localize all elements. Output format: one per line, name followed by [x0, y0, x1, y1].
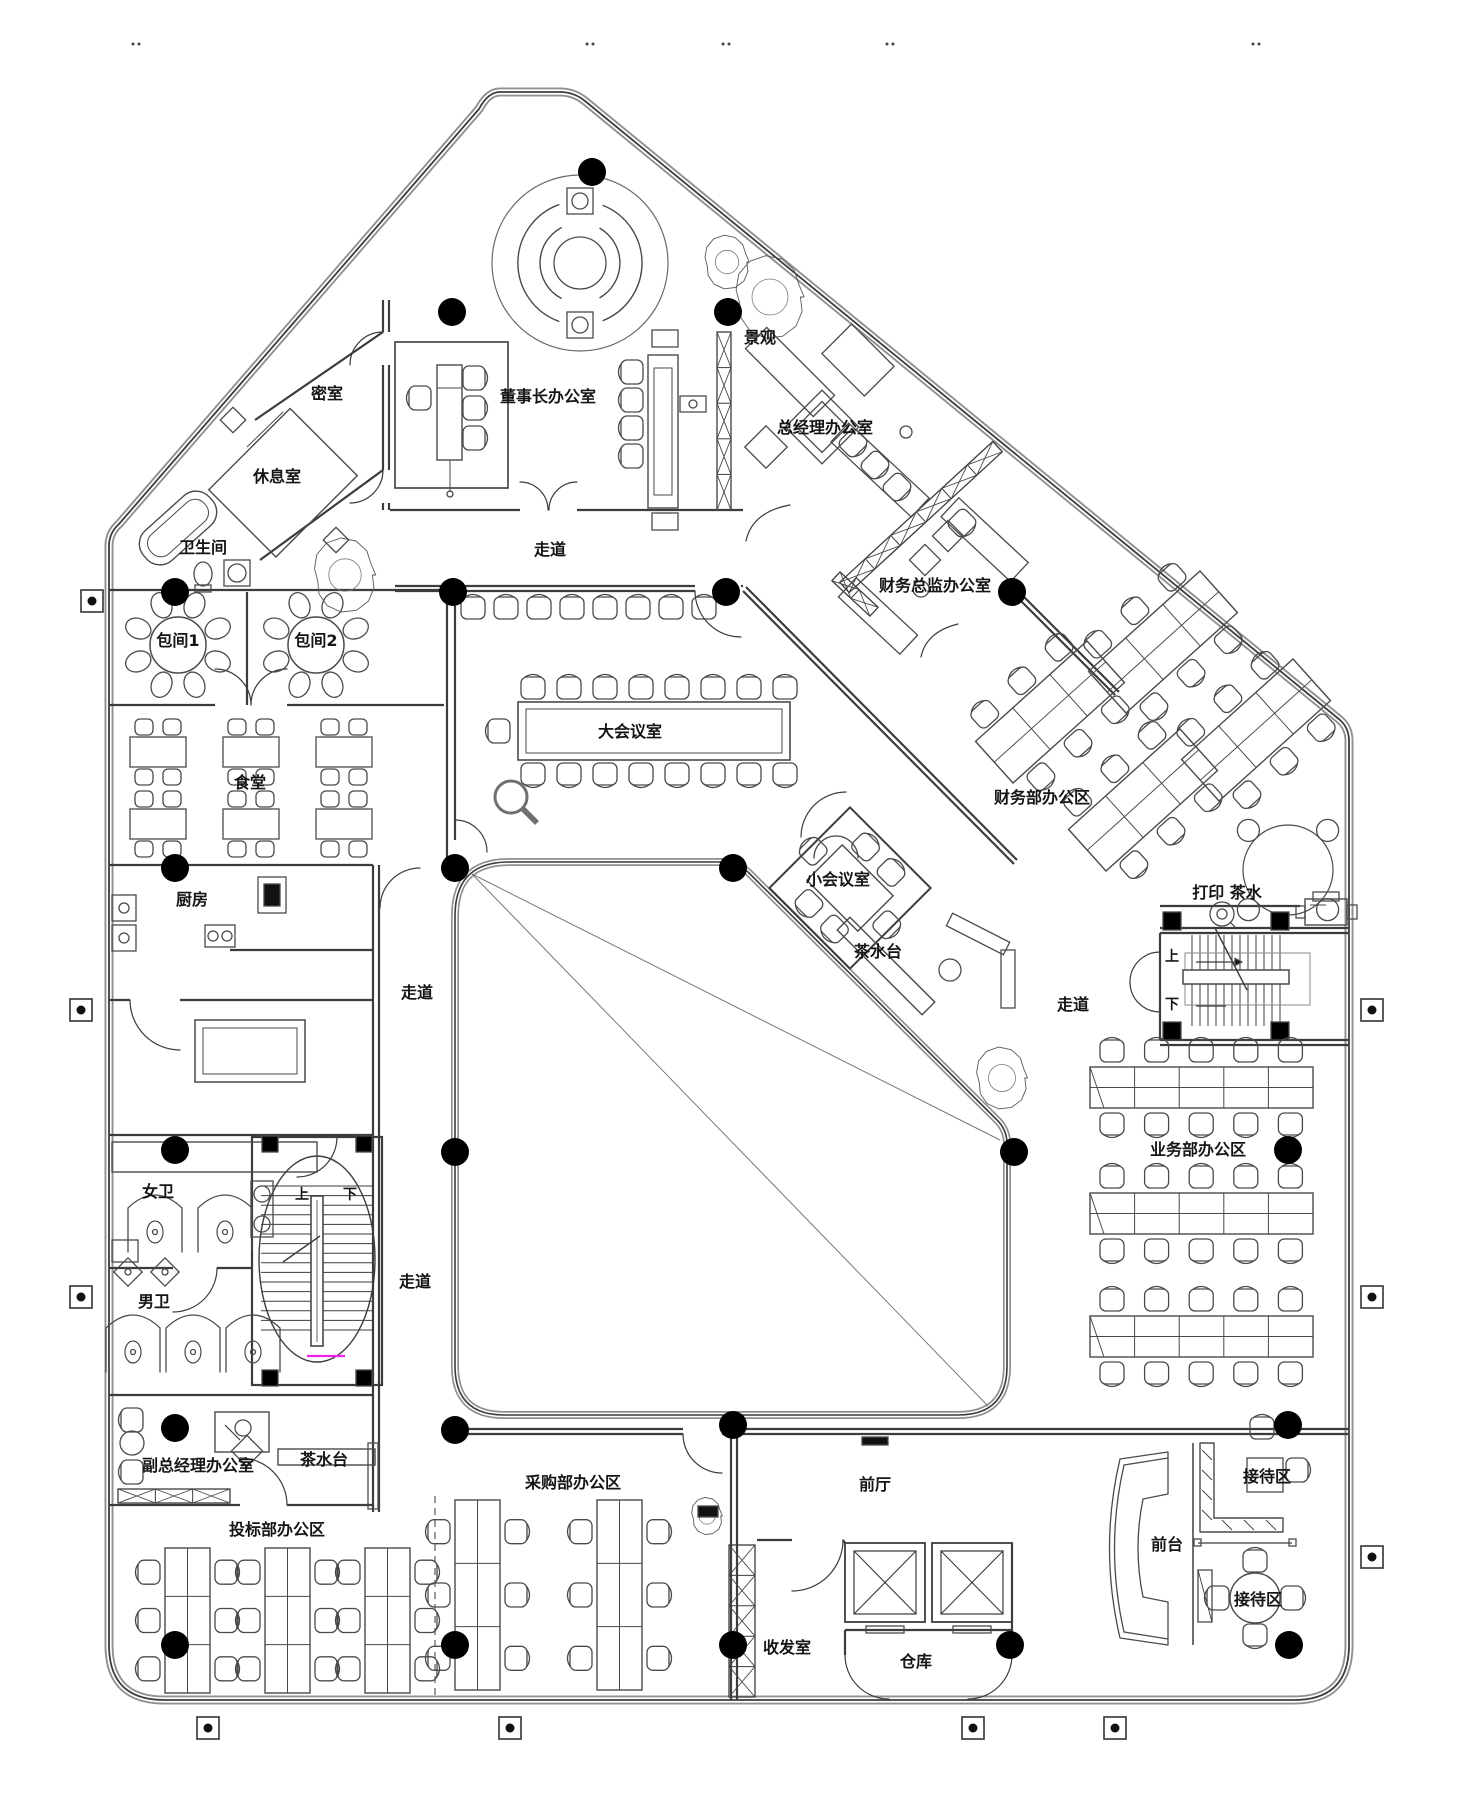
room-label-finance-dept: 财务部办公区 — [993, 788, 1090, 807]
corridor-label-left-1: 走道 — [400, 983, 433, 1002]
interior-walls — [109, 300, 1349, 1700]
room-label-kitchen: 厨房 — [176, 890, 208, 909]
room-label-reception-2: 接待区 — [1234, 1590, 1282, 1609]
room-label-women-wc: 女卫 — [142, 1182, 174, 1201]
room-label-mail-room: 收发室 — [763, 1638, 811, 1657]
room-label-lounge: 休息室 — [252, 467, 301, 486]
stairs-up-label-left: 上 — [295, 1187, 309, 1203]
room-label-gm-office: 总经理办公室 — [777, 418, 873, 437]
stairs-down-label-right: 下 — [1165, 997, 1179, 1013]
room-label-chairman-office: 董事长办公室 — [500, 387, 596, 406]
room-label-tea-station-left: 茶水台 — [299, 1450, 348, 1469]
floor-plan-canvas: 密室 休息室 卫生间 董事长办公室 景观 总经理办公室 财务总监办公室 财务部办… — [0, 0, 1463, 1799]
stairs-down-label-left: 下 — [343, 1187, 357, 1203]
room-label-canteen: 食堂 — [233, 773, 266, 792]
corridor-label-right: 走道 — [1056, 995, 1089, 1014]
room-label-deputy-gm: 副总经理办公室 — [142, 1456, 254, 1475]
corridor-label-left-2: 走道 — [398, 1272, 431, 1291]
room-label-warehouse: 仓库 — [899, 1652, 932, 1671]
room-label-secret-room: 密室 — [310, 384, 343, 403]
room-label-front-hall: 前厅 — [859, 1475, 891, 1494]
room-label-men-wc: 男卫 — [138, 1292, 170, 1311]
room-label-sales-dept: 业务部办公区 — [1150, 1140, 1246, 1159]
room-label-private-room-2: 包间2 — [294, 631, 337, 650]
room-label-cfo-office: 财务总监办公室 — [878, 576, 991, 595]
room-label-purchasing-dept: 采购部办公区 — [524, 1473, 621, 1492]
room-label-front-desk: 前台 — [1151, 1535, 1183, 1554]
floor-plan-page: 密室 休息室 卫生间 董事长办公室 景观 总经理办公室 财务总监办公室 财务部办… — [0, 0, 1463, 1799]
room-label-reception-1: 接待区 — [1243, 1467, 1291, 1486]
room-label-bidding-dept: 投标部办公区 — [229, 1520, 325, 1539]
room-label-private-room-1: 包间1 — [156, 631, 199, 650]
stairs-up-label-right: 上 — [1165, 949, 1179, 965]
room-label-landscape: 景观 — [744, 328, 776, 347]
room-label-tea-station-right: 茶水台 — [853, 942, 902, 961]
room-label-bathroom: 卫生间 — [179, 538, 227, 557]
room-label-small-meeting: 小会议室 — [806, 870, 870, 889]
room-label-print-tea: 打印 茶水 — [1192, 883, 1263, 902]
door-swings — [130, 332, 1160, 1699]
corridor-label-top: 走道 — [533, 540, 566, 559]
room-label-main-meeting: 大会议室 — [598, 722, 662, 741]
